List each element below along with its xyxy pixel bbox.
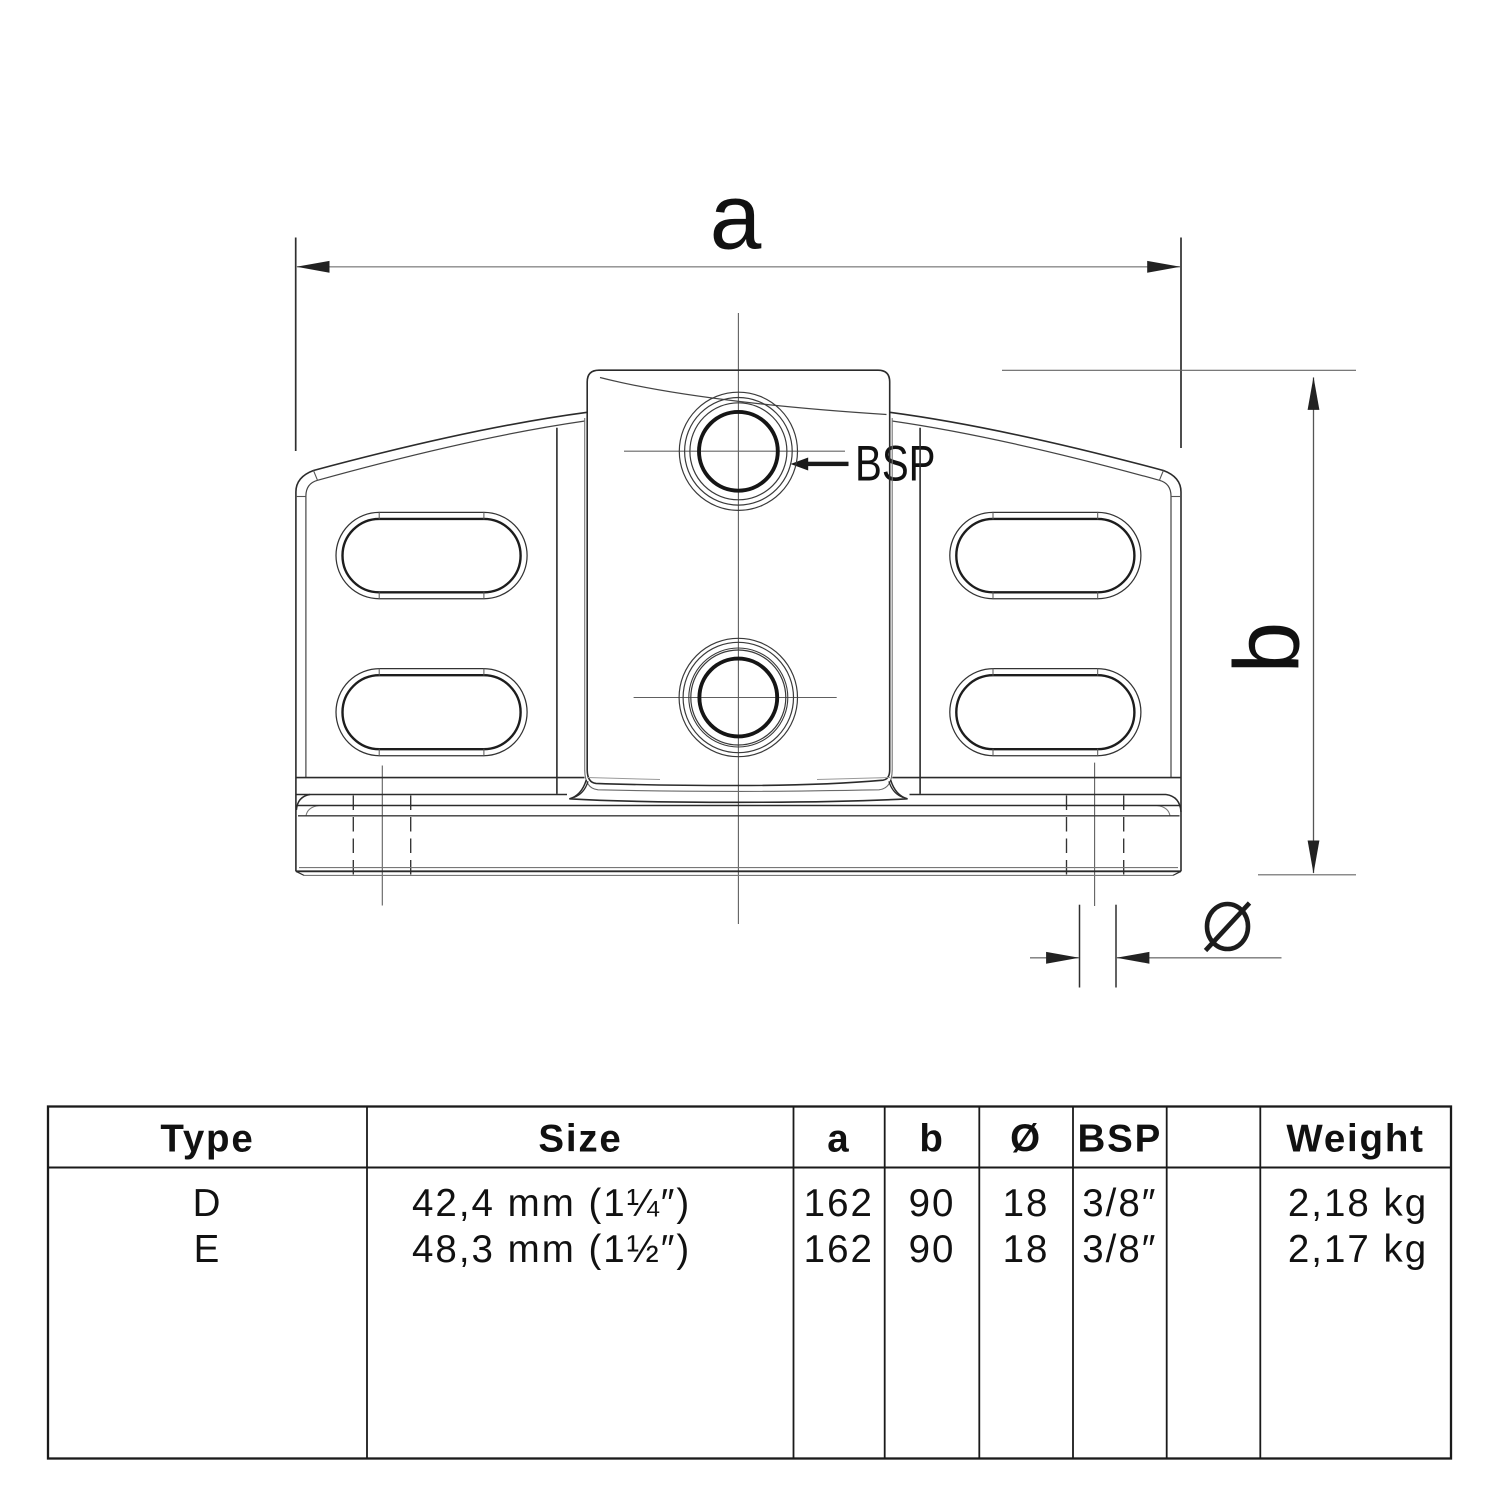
svg-text:90: 90 <box>909 1228 956 1271</box>
svg-text:a: a <box>827 1118 850 1161</box>
svg-text:Ø: Ø <box>1010 1118 1042 1161</box>
svg-text:Type: Type <box>160 1118 254 1161</box>
svg-text:b: b <box>1215 622 1319 674</box>
svg-text:162: 162 <box>804 1182 874 1225</box>
svg-text:BSP: BSP <box>1078 1118 1163 1161</box>
svg-text:3/8″: 3/8″ <box>1082 1182 1157 1225</box>
svg-text:BSP: BSP <box>855 435 936 492</box>
svg-text:D: D <box>193 1182 223 1225</box>
svg-text:3/8″: 3/8″ <box>1082 1228 1157 1271</box>
svg-text:18: 18 <box>1003 1182 1050 1225</box>
svg-text:42,4 mm (1¼″): 42,4 mm (1¼″) <box>412 1182 691 1225</box>
svg-text:Weight: Weight <box>1286 1118 1424 1161</box>
svg-text:18: 18 <box>1003 1228 1050 1271</box>
svg-text:E: E <box>194 1228 222 1271</box>
svg-text:162: 162 <box>804 1228 874 1271</box>
svg-text:a: a <box>710 165 762 269</box>
svg-text:Size: Size <box>538 1118 622 1161</box>
svg-text:2,18 kg: 2,18 kg <box>1288 1182 1428 1225</box>
svg-text:2,17 kg: 2,17 kg <box>1288 1228 1428 1271</box>
svg-text:48,3 mm (1½″): 48,3 mm (1½″) <box>412 1228 691 1271</box>
svg-text:b: b <box>919 1118 944 1161</box>
svg-text:90: 90 <box>909 1182 956 1225</box>
